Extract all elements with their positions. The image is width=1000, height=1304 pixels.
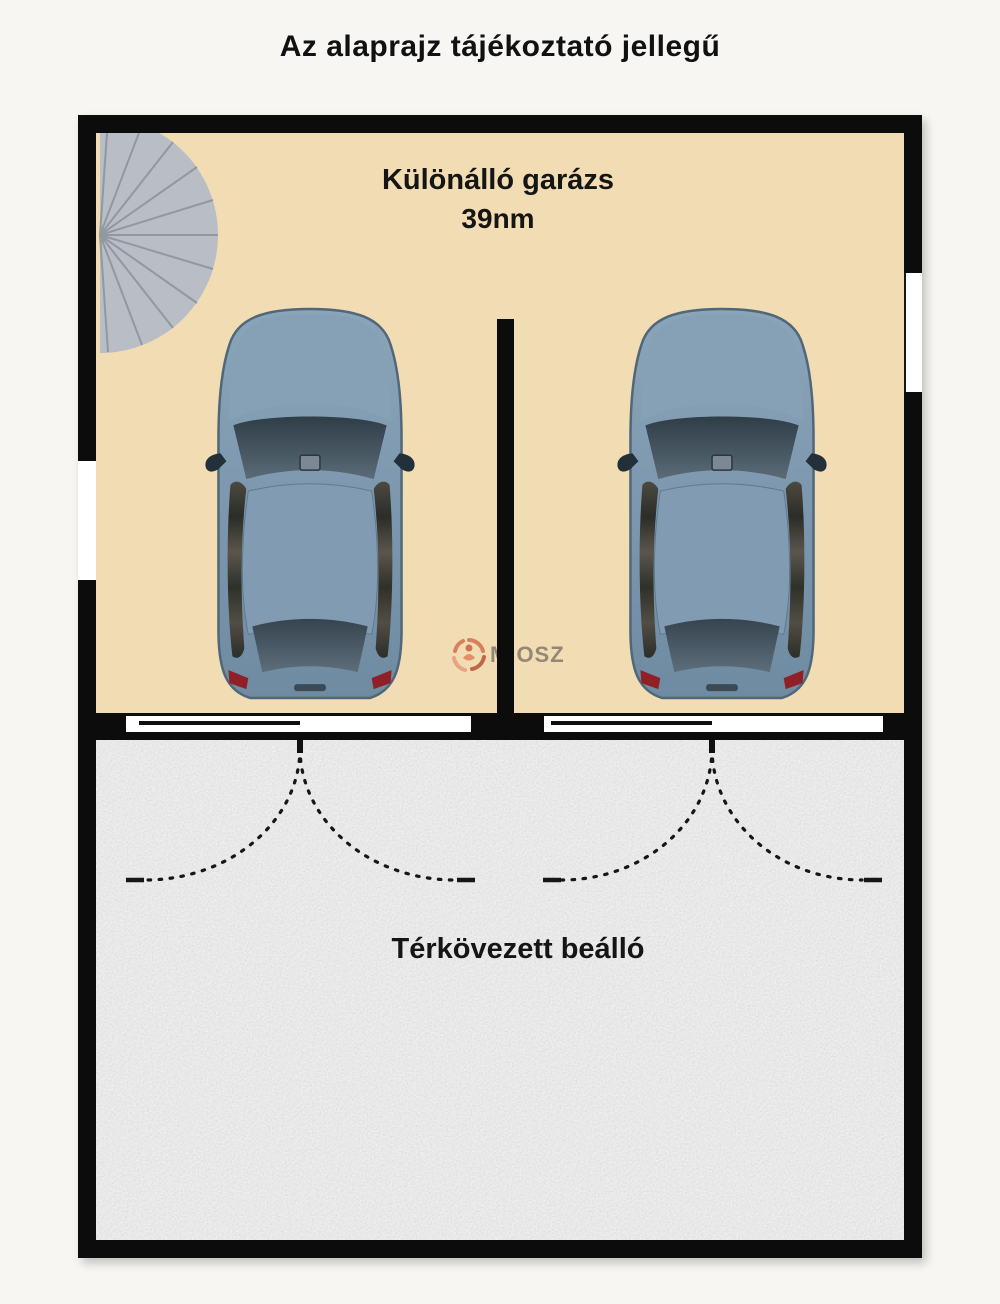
wall-top bbox=[78, 115, 922, 133]
window-opening-right bbox=[904, 273, 922, 392]
carport-label: Térkövezett beálló bbox=[114, 933, 922, 966]
watermark: MIOSZ bbox=[450, 633, 650, 677]
door-swing-arc-icon bbox=[96, 740, 904, 1240]
garage-door-leaf-left bbox=[139, 721, 300, 725]
car-top-view-icon-left bbox=[202, 306, 418, 704]
garage-area: 39nm bbox=[94, 203, 902, 235]
garage-name: Különálló garázs bbox=[94, 164, 902, 197]
wall-left bbox=[78, 115, 96, 1258]
garage-label: Különálló garázs 39nm bbox=[94, 164, 902, 235]
window-opening-left bbox=[78, 461, 96, 580]
miosz-logo-icon bbox=[450, 636, 488, 674]
floor-plan: MIOSZ bbox=[78, 115, 922, 1258]
garage-door-leaf-right bbox=[551, 721, 712, 725]
page: Az alaprajz tájékoztató jellegű bbox=[0, 0, 1000, 1304]
page-title: Az alaprajz tájékoztató jellegű bbox=[0, 30, 1000, 64]
wall-bottom bbox=[78, 1240, 922, 1258]
divider-wall bbox=[497, 319, 514, 740]
